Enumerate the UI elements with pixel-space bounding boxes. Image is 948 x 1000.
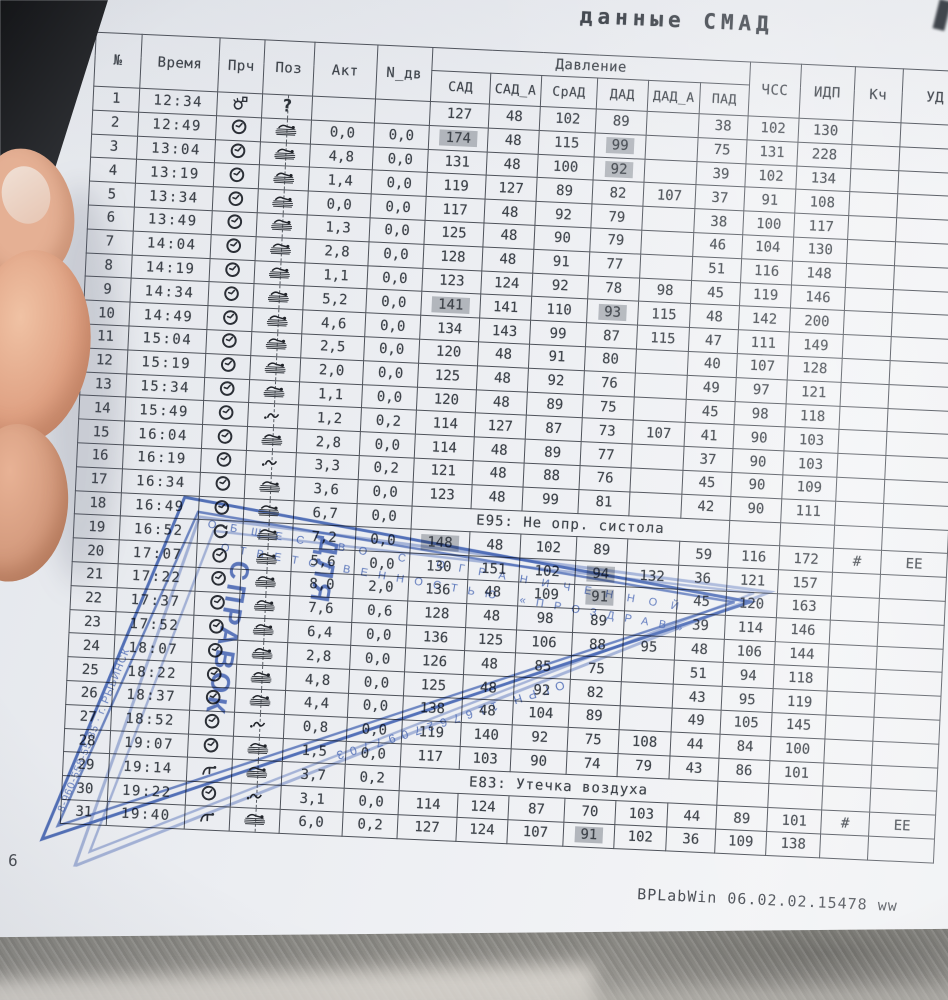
dad-a-cell (621, 658, 674, 684)
activity-cell: 5,2 (303, 286, 367, 313)
clock-icon (203, 712, 221, 733)
lying-position-icon (253, 576, 279, 593)
chss-cell: 102 (747, 116, 799, 142)
sad-a-cell: 48 (475, 389, 527, 415)
position-cell (259, 141, 310, 167)
kch-cell (848, 216, 897, 242)
sad-a-cell: 48 (478, 342, 530, 368)
clock-icon (227, 166, 245, 187)
ndv-cell: 0,2 (358, 456, 414, 482)
sad-cell: 117 (425, 197, 485, 223)
dad-cell: 74 (566, 751, 618, 777)
reason-cell (198, 496, 244, 522)
sad-a-cell: 48 (476, 366, 528, 392)
ndv-cell: 0,0 (357, 479, 413, 505)
idp-cell: 130 (793, 237, 848, 263)
clock-icon (230, 118, 248, 139)
position-cell (238, 617, 289, 643)
idp-cell: 138 (766, 831, 821, 857)
activity-cell: 1,4 (308, 167, 372, 194)
time-cell: 18:37 (112, 683, 191, 710)
hand-press-icon (199, 761, 219, 780)
position-cell (232, 736, 283, 762)
idp-cell: 121 (786, 380, 841, 406)
clock-icon (226, 189, 244, 210)
idp-cell: 228 (797, 142, 852, 168)
sad-a-cell: 48 (461, 698, 513, 724)
clock-icon (224, 237, 242, 258)
position-cell (229, 807, 280, 833)
reason-cell (200, 448, 246, 474)
reason-cell (193, 615, 239, 641)
kch-cell (844, 287, 893, 313)
activity-cell: 6,0 (279, 809, 343, 836)
ud-cell (889, 361, 948, 388)
clock-icon (213, 475, 231, 496)
idp-cell: 109 (782, 475, 837, 501)
srad-cell: 99 (522, 487, 579, 513)
lying-position-icon (272, 148, 298, 165)
ud-cell (870, 788, 937, 815)
idp-cell: 103 (784, 427, 839, 453)
time-cell: 16:52 (119, 516, 198, 543)
reason-cell (189, 710, 235, 736)
reason-cell (187, 734, 233, 760)
table-body: 112:34?127481028938102130212:490,00,0174… (60, 86, 948, 863)
col-header-kch: Кч (853, 67, 903, 123)
col-header-srad: СрАД (540, 75, 597, 109)
idp-cell: 118 (785, 403, 840, 429)
position-cell (258, 165, 309, 191)
sad-a-cell: 124 (456, 817, 508, 843)
paper-sheet: данные СМАД № Время Прч Поз Акт N_дв Дав (0, 0, 948, 999)
reason-cell (212, 187, 258, 213)
chss-cell: 90 (730, 496, 782, 522)
bulb-marker-icon (231, 94, 249, 115)
ud-cell (885, 456, 948, 483)
activity-cell: 2,0 (300, 358, 364, 385)
dad-cell: 89 (595, 109, 647, 135)
dad-a-cell (646, 111, 699, 137)
ud-cell (891, 313, 948, 340)
idp-cell: 128 (787, 356, 842, 382)
sad-cell: 123 (412, 482, 472, 508)
ud-cell (882, 527, 948, 554)
movement-squiggle-icon (248, 717, 271, 734)
position-cell (250, 355, 301, 381)
col-header-ndv: N_дв (375, 45, 432, 101)
kch-cell (847, 240, 896, 266)
activity-cell: 6,4 (288, 619, 352, 646)
idp-cell: 157 (778, 570, 833, 596)
chss-cell: 114 (724, 615, 776, 641)
chss-cell: 131 (746, 140, 798, 166)
activity-cell: 4,8 (309, 144, 373, 171)
position-cell (254, 260, 305, 286)
clock-icon (218, 380, 236, 401)
srad-cell: 90 (510, 748, 567, 774)
time-cell: 17:07 (118, 540, 197, 567)
sad-cell: 128 (407, 601, 467, 627)
sad-a-cell: 48 (482, 247, 534, 273)
pad-cell: 43 (672, 684, 722, 710)
dad-a-cell: 79 (617, 753, 670, 779)
lying-position-icon (245, 742, 271, 759)
time-cell: 14:19 (131, 255, 210, 282)
srad-cell: 92 (527, 368, 584, 394)
chss-cell (717, 782, 769, 808)
pad-cell: 45 (676, 589, 726, 615)
clock-icon (220, 332, 238, 353)
sad-a-cell: 127 (485, 175, 537, 201)
ndv-cell: 0,0 (355, 527, 411, 553)
idp-cell: 172 (779, 546, 834, 572)
sad-a-cell: 48 (462, 675, 514, 701)
kch-cell (834, 525, 883, 551)
time-cell: 16:04 (124, 421, 203, 448)
srad-cell: 102 (539, 106, 596, 132)
sad-a-cell: 124 (457, 794, 509, 820)
col-header-reason: Прч (218, 38, 265, 94)
dad-cell: 79 (590, 228, 642, 254)
dad-a-cell (627, 539, 680, 565)
sad-cell: 117 (400, 743, 460, 769)
reason-cell (209, 258, 255, 284)
ud-cell: ЕЕ (869, 812, 936, 839)
ndv-cell: 0,0 (363, 360, 419, 386)
pad-cell: 42 (681, 494, 731, 520)
sad-cell: 138 (402, 696, 462, 722)
activity-cell: 3,3 (295, 453, 359, 480)
pad-cell: 40 (687, 351, 737, 377)
srad-cell: 91 (528, 344, 585, 370)
reason-cell (206, 330, 252, 356)
dad-cell: 77 (580, 442, 632, 468)
lying-position-icon (256, 504, 282, 521)
ud-cell (877, 622, 944, 649)
pad-cell: 36 (666, 827, 716, 853)
sad-cell: 134 (420, 315, 480, 341)
time-cell: 18:07 (114, 635, 193, 662)
activity-cell: 0,0 (310, 120, 374, 147)
clock-icon (222, 285, 240, 306)
srad-cell: 91 (533, 249, 590, 275)
idp-cell (768, 784, 823, 810)
srad-cell: 110 (531, 297, 588, 323)
lying-position-icon (251, 600, 277, 617)
ndv-cell: 0,0 (343, 788, 399, 814)
ndv-cell: 0,0 (356, 503, 412, 529)
ud-cell (872, 741, 939, 768)
reason-cell (197, 520, 243, 546)
row-number-cell: 31 (60, 799, 107, 825)
sad-cell: 126 (405, 648, 465, 674)
hand-press-icon (197, 808, 217, 827)
position-cell (248, 403, 299, 429)
kch-cell (836, 477, 885, 503)
pad-cell: 45 (682, 470, 732, 496)
kch-cell (849, 192, 898, 218)
ud-cell (886, 432, 948, 459)
dad-cell: 76 (583, 370, 635, 396)
dad-cell: 81 (578, 489, 630, 515)
col-header-position: Поз (263, 40, 315, 96)
row-number-cell: 1 (93, 86, 140, 112)
kch-cell (826, 691, 875, 717)
idp-cell: 101 (767, 808, 822, 834)
dad-a-cell (644, 159, 697, 185)
ndv-cell: 0,2 (342, 812, 398, 838)
pad-cell: 44 (670, 732, 720, 758)
dad-a-cell (642, 206, 695, 232)
chss-cell: 109 (715, 829, 767, 855)
position-cell (245, 450, 296, 476)
ndv-cell: 0,0 (367, 265, 423, 291)
software-version: BPLabWin 06.02.02.15478 ww (637, 885, 898, 915)
movement-squiggle-icon (259, 456, 282, 473)
sad-a-cell: 48 (467, 580, 519, 606)
time-cell: 13:19 (135, 160, 214, 187)
kch-cell (825, 715, 874, 741)
ud-cell (883, 503, 948, 530)
lying-position-icon (244, 766, 270, 783)
ndv-cell: 0,0 (373, 123, 429, 149)
chss-cell: 90 (731, 472, 783, 498)
chss-cell: 86 (718, 758, 770, 784)
dad-a-cell: 107 (632, 420, 685, 446)
sad-cell: 125 (417, 363, 477, 389)
dad-a-cell (645, 135, 698, 161)
srad-cell: 109 (518, 582, 575, 608)
ndv-cell (374, 99, 430, 125)
col-header-idp: ИДП (799, 64, 855, 120)
srad-cell: 104 (512, 701, 569, 727)
sad-cell: 119 (401, 720, 461, 746)
kch-cell (837, 453, 886, 479)
chss-cell: 89 (716, 805, 768, 831)
chss-cell: 100 (743, 211, 795, 237)
reason-cell (194, 591, 240, 617)
kch-cell (829, 620, 878, 646)
time-cell: 15:04 (128, 326, 207, 353)
row-number-cell: 29 (62, 752, 109, 778)
ndv-cell: 0,0 (371, 170, 427, 196)
ndv-cell: 0,0 (345, 741, 401, 767)
time-cell: 19:07 (110, 730, 189, 757)
ud-cell (890, 337, 948, 364)
row-number-cell: 30 (61, 776, 108, 802)
ndv-cell: 0,0 (372, 147, 428, 173)
activity-cell: 3,6 (294, 476, 358, 503)
col-header-number: № (94, 32, 142, 88)
position-cell: ? (262, 94, 313, 120)
pad-cell: 38 (698, 114, 748, 140)
activity-cell: 7,2 (292, 524, 356, 551)
ud-cell (888, 384, 948, 411)
blurred-light-area-2 (560, 988, 948, 1000)
clock-icon (221, 308, 239, 329)
time-cell: 19:14 (108, 754, 187, 781)
pad-cell: 49 (671, 708, 721, 734)
dad-a-cell: 108 (618, 729, 671, 755)
chss-cell (729, 520, 781, 546)
col-header-chss: ЧСС (748, 62, 801, 118)
lying-position-icon (261, 386, 287, 403)
srad-cell: 92 (513, 677, 570, 703)
clock-icon (228, 142, 246, 163)
ndv-cell: 0,0 (364, 337, 420, 363)
sad-a-cell: 124 (481, 271, 533, 297)
lying-position-icon (242, 813, 268, 830)
ud-cell (874, 693, 941, 720)
ud-cell (876, 646, 943, 673)
position-cell (260, 118, 311, 144)
chss-cell: 98 (734, 401, 786, 427)
lying-position-icon (264, 314, 290, 331)
srad-cell: 89 (526, 392, 583, 418)
reason-cell (195, 567, 241, 593)
lying-position-icon (259, 433, 285, 450)
lying-position-icon (255, 528, 281, 545)
ndv-cell: 0,0 (349, 670, 405, 696)
ndv-cell: 0,0 (354, 551, 410, 577)
idp-cell: 101 (769, 760, 824, 786)
ud-cell (897, 194, 948, 221)
dad-cell: 93 (587, 299, 639, 325)
question-mark: ? (282, 99, 293, 115)
idp-cell: 148 (792, 261, 847, 287)
sad-cell: 130 (409, 553, 469, 579)
position-cell (241, 546, 292, 572)
col-header-pad: ПАД (699, 83, 749, 116)
ndv-cell: 0,6 (352, 598, 408, 624)
kch-cell (828, 644, 877, 670)
row-number-cell: 28 (64, 728, 111, 754)
position-cell (253, 284, 304, 310)
activity-cell: 1,1 (304, 263, 368, 290)
ud-cell (896, 218, 948, 245)
time-cell: 12:34 (139, 88, 218, 115)
time-cell: 19:40 (106, 801, 185, 828)
time-cell: 13:49 (133, 207, 212, 234)
position-cell (257, 189, 308, 215)
srad-cell: 89 (536, 178, 593, 204)
srad-cell: 90 (534, 225, 591, 251)
dad-cell: 80 (584, 347, 636, 373)
chss-cell: 111 (737, 330, 789, 356)
activity-cell: 1,5 (282, 738, 346, 765)
ndv-cell: 0,0 (351, 622, 407, 648)
lying-position-icon (249, 647, 275, 664)
time-cell: 18:52 (111, 706, 190, 733)
dad-cell: 82 (592, 180, 644, 206)
dad-cell: 91 (574, 584, 626, 610)
pad-cell: 51 (673, 660, 723, 686)
reason-cell (211, 211, 257, 237)
lying-position-icon (267, 267, 293, 284)
lying-position-icon (250, 623, 276, 640)
lying-position-icon (247, 695, 273, 712)
activity-cell: 8,0 (290, 572, 354, 599)
dad-a-cell (619, 706, 672, 732)
position-cell (231, 759, 282, 785)
sad-cell: 125 (424, 220, 484, 246)
pad-cell: 44 (667, 803, 717, 829)
chss-cell: 121 (727, 568, 779, 594)
col-header-sad: САД (430, 70, 490, 104)
srad-cell: 87 (525, 415, 582, 441)
idp-cell (780, 522, 835, 548)
ndv-cell: 0,0 (361, 384, 417, 410)
time-cell: 18:22 (113, 659, 192, 686)
reason-cell (186, 757, 232, 783)
idp-cell: 100 (770, 736, 825, 762)
position-cell (249, 379, 300, 405)
dad-a-cell (620, 682, 673, 708)
reason-cell (217, 92, 263, 118)
col-header-time: Время (140, 34, 220, 91)
ud-cell (887, 408, 948, 435)
idp-cell: 163 (776, 594, 831, 620)
sad-a-cell: 141 (480, 294, 532, 320)
kch-cell: # (821, 810, 870, 836)
ndv-cell: 0,2 (344, 765, 400, 791)
clock-icon (212, 498, 230, 519)
col-header-activity: Акт (313, 42, 378, 99)
clock-icon (210, 546, 228, 567)
reason-cell (213, 163, 259, 189)
lying-position-icon (270, 195, 296, 212)
col-header-sad-a: САД_А (489, 73, 541, 106)
activity-cell: 2,8 (305, 239, 369, 266)
clock-icon (225, 213, 243, 234)
sad-a-cell: 48 (471, 485, 523, 511)
position-cell (244, 474, 295, 500)
sad-cell: 131 (427, 149, 487, 175)
dad-a-cell (629, 492, 682, 518)
dad-a-cell (641, 230, 694, 256)
idp-cell: 134 (796, 166, 851, 192)
col-header-ud: УД (901, 69, 948, 126)
reason-cell (184, 805, 230, 831)
position-cell (252, 308, 303, 334)
activity-cell: 4,4 (284, 690, 348, 717)
srad-cell: 98 (517, 606, 574, 632)
time-cell: 15:19 (127, 350, 206, 377)
dad-cell: 89 (573, 608, 625, 634)
reason-cell (208, 282, 254, 308)
dad-cell: 89 (568, 703, 620, 729)
kch-cell (822, 786, 871, 812)
pad-cell: 45 (691, 280, 741, 306)
sad-cell: 127 (429, 101, 489, 127)
clock-icon (219, 356, 237, 377)
sad-a-cell: 48 (469, 532, 521, 558)
dad-cell: 82 (569, 680, 621, 706)
retry-arrow-icon (211, 522, 229, 543)
clock-icon (207, 617, 225, 638)
sad-cell: 136 (406, 624, 466, 650)
ud-cell (868, 836, 935, 863)
reason-cell (199, 472, 245, 498)
sad-a-cell: 140 (460, 722, 512, 748)
col-header-dad: ДАД (596, 78, 648, 111)
kch-cell (839, 406, 888, 432)
kch-cell (851, 144, 900, 170)
pad-cell: 37 (695, 185, 745, 211)
ud-cell (893, 265, 948, 292)
srad-cell: 100 (537, 154, 594, 180)
